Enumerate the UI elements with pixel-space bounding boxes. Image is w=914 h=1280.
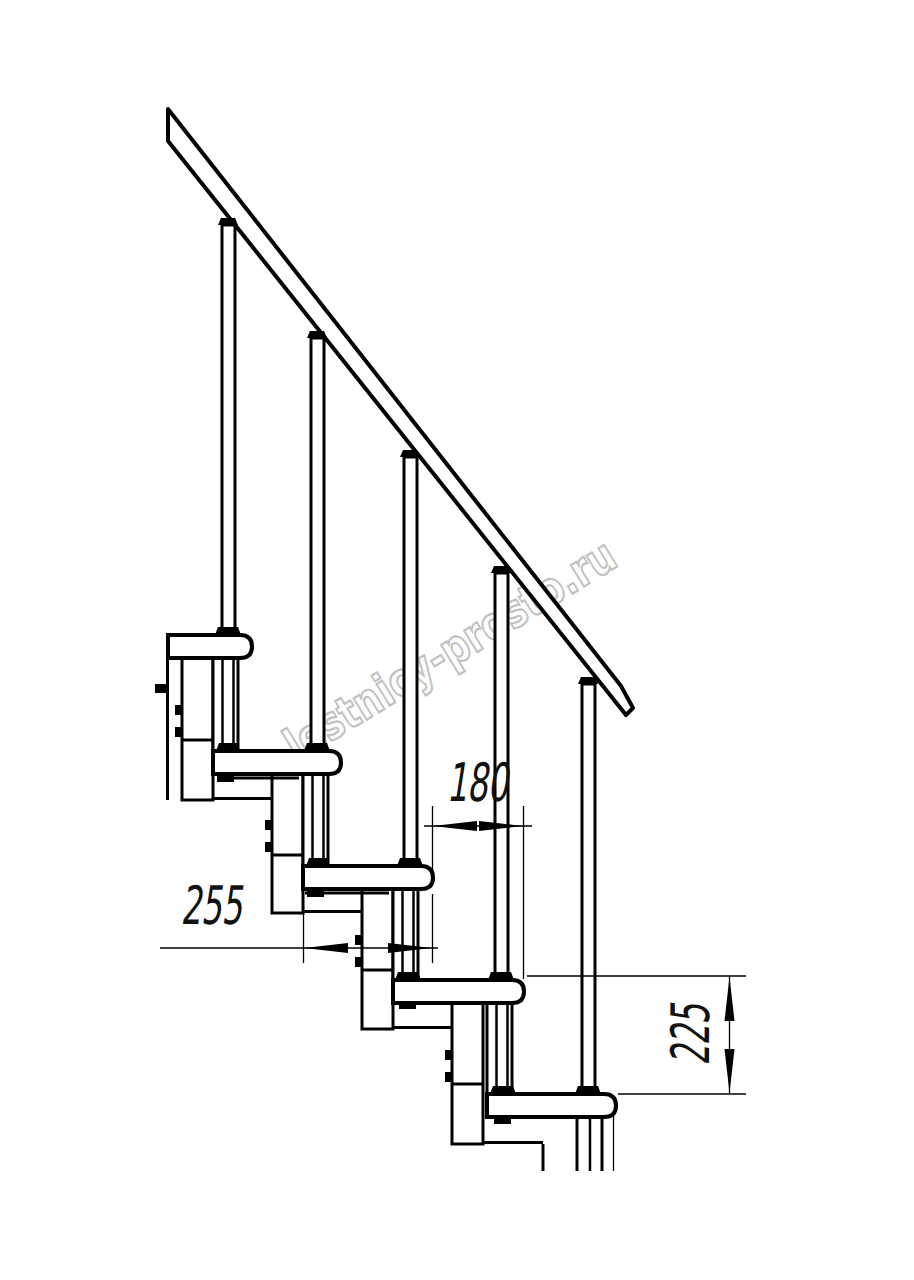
baluster <box>222 225 235 635</box>
rail-mount <box>578 677 598 684</box>
arrowhead-down <box>725 1049 735 1093</box>
arrowhead-left <box>433 821 477 831</box>
tread <box>393 980 524 1003</box>
arrowhead-left <box>304 943 348 953</box>
rail-mount <box>491 566 511 573</box>
handrail <box>168 109 633 715</box>
module-bolt <box>445 1072 453 1082</box>
arrowhead-up <box>725 977 735 1021</box>
tread <box>487 1094 616 1117</box>
rail-mount <box>218 218 238 225</box>
module-bolt <box>355 957 363 967</box>
module-box <box>452 1002 483 1144</box>
module-bolt <box>155 684 169 693</box>
dimension-label-step-rise: 225 <box>660 1005 721 1066</box>
tread <box>213 751 341 774</box>
dimension-label-step-run: 180 <box>447 752 508 813</box>
baluster <box>404 457 417 866</box>
rail-mount <box>307 331 327 338</box>
dimension-180 <box>424 806 532 979</box>
stair-drawing-canvas: lestnicy-prosto.ru <box>0 0 914 1280</box>
stair-drawing <box>0 0 914 1280</box>
tread <box>303 866 433 889</box>
module-box <box>182 657 213 800</box>
module-box <box>362 888 393 1029</box>
module-bolt <box>175 705 183 715</box>
rail-mount <box>400 450 420 457</box>
module-bolt <box>355 935 363 945</box>
module-bolt <box>265 820 273 830</box>
baluster <box>311 338 324 751</box>
baluster <box>582 684 595 1094</box>
module-box <box>272 773 303 913</box>
tread <box>168 635 252 658</box>
module-bolt <box>265 842 273 852</box>
module-bolt <box>445 1050 453 1060</box>
dimension-label-tread-depth: 255 <box>181 875 242 936</box>
module-bolt <box>175 727 183 737</box>
